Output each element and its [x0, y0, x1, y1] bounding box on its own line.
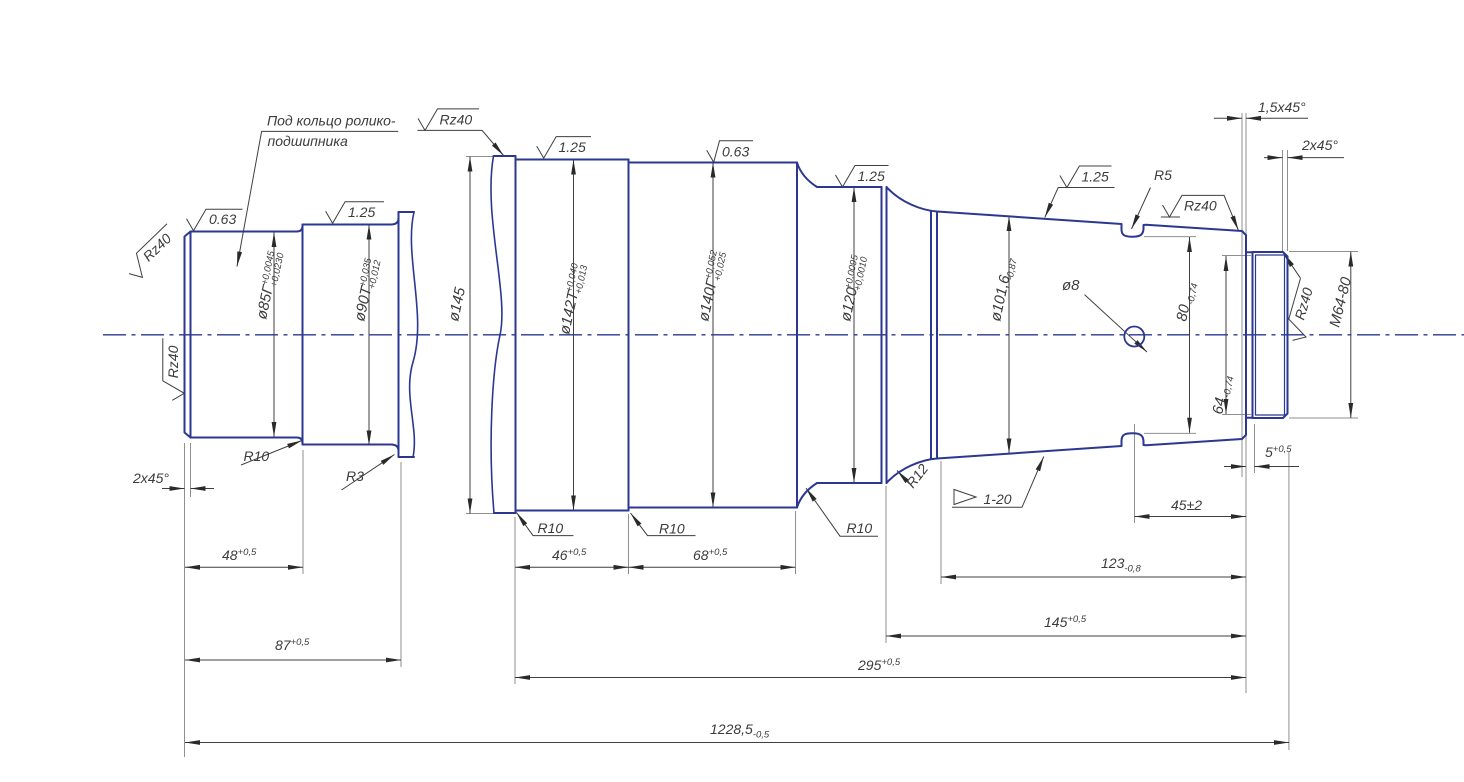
svg-text:0.63: 0.63: [722, 144, 749, 160]
svg-text:-0,87: -0,87: [1005, 257, 1020, 281]
svg-text:46+0,5: 46+0,5: [552, 547, 587, 563]
svg-text:5+0,5: 5+0,5: [1265, 444, 1292, 460]
svg-text:R10: R10: [538, 520, 564, 536]
svg-text:1-20: 1-20: [984, 491, 1012, 507]
svg-text:Rz40: Rz40: [165, 345, 181, 378]
svg-text:Под кольцо ролико-: Под кольцо ролико-: [267, 113, 396, 129]
svg-text:45±2: 45±2: [1171, 497, 1202, 513]
svg-text:0.63: 0.63: [209, 211, 236, 227]
svg-text:ø140Г: ø140Г: [695, 276, 721, 323]
svg-text:1.25: 1.25: [348, 204, 375, 220]
svg-text:68+0,5: 68+0,5: [693, 547, 728, 563]
svg-text:Rz40: Rz40: [440, 112, 473, 128]
svg-text:R10: R10: [847, 520, 873, 536]
svg-text:64: 64: [1209, 396, 1229, 416]
svg-text:87+0,5: 87+0,5: [275, 637, 310, 653]
svg-text:2x45°: 2x45°: [1301, 137, 1338, 153]
svg-text:R5: R5: [1154, 167, 1172, 183]
svg-text:R10: R10: [659, 521, 685, 537]
svg-text:ø8: ø8: [1062, 277, 1080, 294]
svg-text:1.25: 1.25: [559, 139, 586, 155]
svg-text:-0,74: -0,74: [1221, 375, 1236, 398]
svg-text:-0,74: -0,74: [1185, 282, 1200, 305]
svg-text:145+0,5: 145+0,5: [1044, 614, 1087, 630]
svg-text:подшипника: подшипника: [268, 133, 348, 149]
svg-text:1,5x45°: 1,5x45°: [1258, 99, 1306, 115]
svg-text:Rz40: Rz40: [1184, 198, 1217, 214]
svg-text:Rz40: Rz40: [1291, 286, 1315, 322]
svg-text:1228,5-0,5: 1228,5-0,5: [710, 721, 770, 741]
svg-text:R3: R3: [346, 468, 364, 484]
svg-text:2x45°: 2x45°: [132, 470, 169, 486]
svg-text:48+0,5: 48+0,5: [222, 547, 257, 563]
svg-text:ø145: ø145: [445, 285, 469, 323]
svg-text:Rz40: Rz40: [140, 230, 175, 264]
svg-text:295+0,5: 295+0,5: [857, 657, 901, 673]
svg-text:123-0,8: 123-0,8: [1101, 555, 1141, 575]
svg-text:R12: R12: [903, 461, 932, 491]
svg-text:ø142Т: ø142Т: [556, 288, 582, 336]
svg-text:1.25: 1.25: [858, 168, 885, 184]
svg-text:1.25: 1.25: [1082, 169, 1109, 185]
svg-text:R10: R10: [244, 448, 270, 464]
